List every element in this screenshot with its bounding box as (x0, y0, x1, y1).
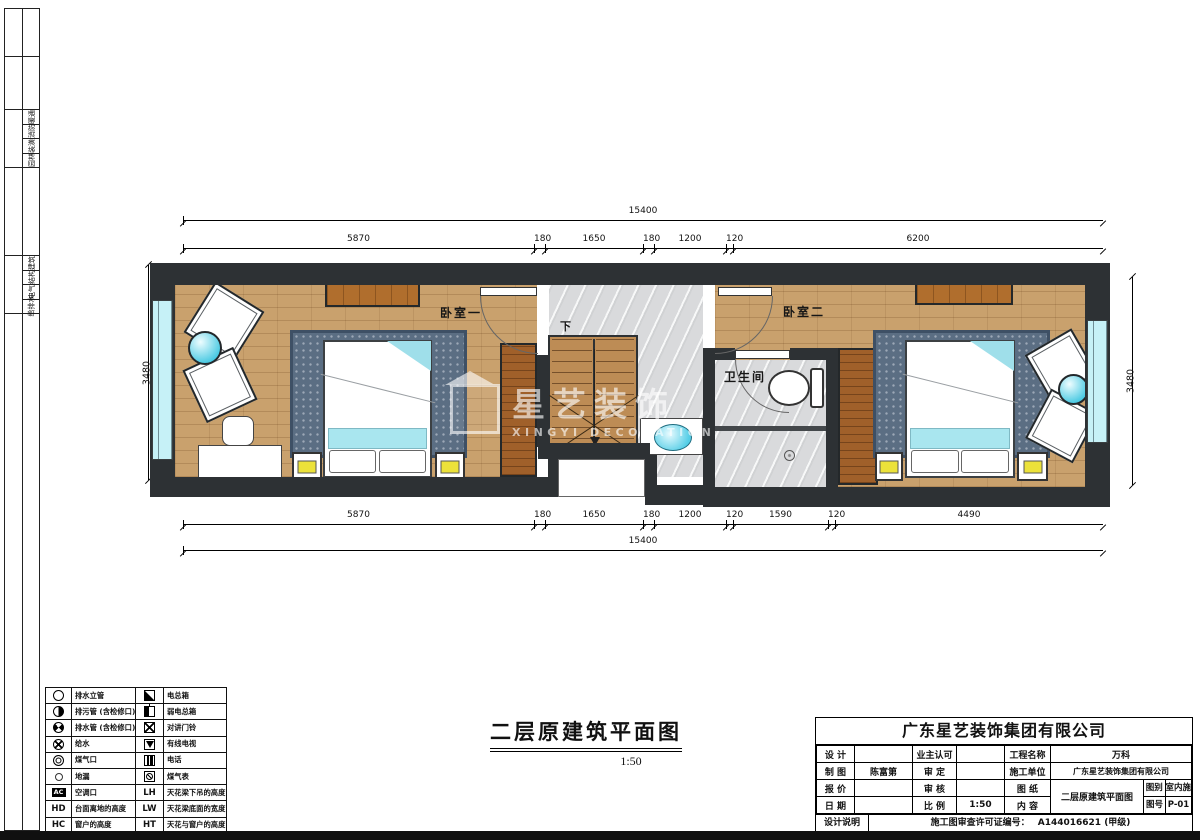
bedroom2-bed (905, 340, 1015, 478)
stairs-down-label: 下 (560, 318, 573, 334)
date-label: 日 期 (817, 797, 855, 814)
wall-corridor-bedroom2 (703, 350, 715, 487)
drain-riser-icon (53, 690, 64, 701)
pillow (379, 450, 426, 473)
discipline-plumbing: 给排水 (23, 299, 40, 313)
sheet-bottom-border (0, 831, 1200, 840)
stair-treads (596, 339, 634, 451)
number-cell: 图号 P-01 (1144, 797, 1192, 814)
hd-code: HD (51, 804, 65, 814)
gas-meter-icon (144, 771, 155, 782)
discipline-fire: 消防 (23, 124, 40, 138)
bedroom1-desk (198, 445, 282, 480)
legend-label: 给水 (72, 737, 136, 753)
company-name: 广东星艺装饰集团有限公司 (816, 718, 1192, 745)
permit-number: 施工图审查许可证编号： A144016621 (甲级) (869, 815, 1192, 832)
number-value: P-01 (1166, 797, 1191, 813)
cable-tv-icon (144, 739, 155, 750)
legend-label: 空调口 (72, 785, 136, 801)
content-label: 内 容 (1005, 797, 1051, 814)
wall-bedroom1-corridor (537, 355, 549, 447)
dim-right: 3480 (1124, 277, 1140, 485)
bedroom1-door-leaf (480, 287, 537, 296)
lamp (298, 460, 317, 473)
cad-sheet: 暖通 消防 装潢 园林 建筑 结构 电气 给排水 15400 5870 180 … (0, 0, 1200, 840)
strip-line (5, 167, 39, 168)
dim-top-overall: 15400 (183, 206, 1103, 221)
owner-value (957, 746, 1005, 763)
discipline-strip: 暖通 消防 装潢 园林 建筑 结构 电气 给排水 (4, 8, 40, 831)
category-cell: 图别 室内施 (1144, 780, 1192, 797)
stairwell-void (558, 459, 645, 497)
lamp (1023, 460, 1042, 473)
water-supply-icon (53, 739, 64, 750)
lamp (880, 460, 899, 473)
dim-top-segments: 5870 180 1650 180 1200 120 6200 (183, 234, 1103, 249)
pillow (329, 450, 376, 473)
owner-label: 业主认可 (913, 746, 957, 763)
dim-bottom-overall: 15400 (183, 536, 1103, 551)
approve-value (957, 763, 1005, 780)
bedroom2-label: 卧室二 (783, 303, 825, 320)
contractor-value: 广东星艺装饰集团有限公司 (1051, 763, 1192, 780)
weak-power-box-icon (144, 706, 155, 717)
floor-drain-icon (55, 773, 63, 781)
legend-label: 天花梁底面的宽度 (164, 801, 226, 817)
stair-treads (552, 339, 592, 451)
wall-stub (548, 459, 558, 497)
legend-label: 地漏 (72, 769, 136, 785)
number-label: 图号 (1144, 797, 1166, 813)
floor-plan: 卧室一 卧室二 卫生间 下 (150, 258, 1110, 510)
lamp (441, 460, 460, 473)
legend-label: 煤气口 (72, 753, 136, 769)
draft-label: 制 图 (817, 763, 855, 780)
draft-value: 陈富第 (855, 763, 913, 780)
bedroom1-label: 卧室一 (440, 304, 482, 321)
window-right (1087, 320, 1108, 443)
door-bell-icon (144, 722, 155, 733)
sheet-label: 图 纸 (1005, 780, 1051, 797)
bed-blanket (910, 428, 1010, 449)
bathroom-door-leaf (735, 350, 790, 359)
legend-label: 电总箱 (164, 688, 226, 704)
legend-label: 天花梁下吊的高度 (164, 785, 226, 801)
legend-label: 弱电总箱 (164, 704, 226, 720)
date-value (855, 797, 913, 814)
title-block-grid: 设 计 业主认可 工程名称 万科 制 图 陈富第 审 定 施工单位 广东星艺装饰… (816, 745, 1192, 814)
design-label: 设 计 (817, 746, 855, 763)
quote-label: 报 价 (817, 780, 855, 797)
contractor-label: 施工单位 (1005, 763, 1051, 780)
wall-under-stairs (538, 443, 650, 459)
check-value (957, 780, 1005, 797)
legend-label: 台面离地的高度 (72, 801, 136, 817)
shower-divider (715, 426, 826, 431)
telephone-icon (144, 755, 155, 766)
sewage-pipe-icon (53, 706, 64, 717)
discipline-hvac: 暖通 (23, 109, 40, 123)
note-label: 设计说明 (816, 815, 869, 832)
power-box-icon (144, 690, 155, 701)
ht-code: HT (143, 820, 156, 830)
legend-label: 对讲门铃 (164, 720, 226, 736)
window-left (152, 300, 173, 460)
discipline-arch: 建筑 (23, 255, 40, 269)
category-value: 室内施 (1166, 780, 1192, 796)
pillow (961, 450, 1009, 473)
wall-bottom-right (703, 487, 1110, 507)
bedroom2-wardrobe (838, 348, 878, 485)
bedroom1-bed (323, 340, 432, 478)
washbasin (654, 424, 692, 451)
legend-label: 排污管 (含检修口) (72, 704, 136, 720)
wall-top (150, 263, 1110, 285)
check-label: 审 核 (913, 780, 957, 797)
discipline-decor: 装潢 (23, 138, 40, 152)
bedroom2-nightstand-left (875, 452, 903, 481)
stairs (548, 335, 638, 455)
floor-drain (784, 450, 795, 461)
approve-label: 审 定 (913, 763, 957, 780)
hc-code: HC (52, 820, 65, 830)
lh-code: LH (143, 788, 156, 798)
gas-port-icon (53, 755, 64, 766)
discipline-structure: 结构 (23, 270, 40, 284)
lw-code: LW (142, 804, 156, 814)
project-label: 工程名称 (1005, 746, 1051, 763)
bathroom-label: 卫生间 (724, 368, 766, 385)
scale-label: 比 例 (913, 797, 957, 814)
ac-code: AC (52, 788, 66, 797)
stair-direction-arrow (594, 349, 595, 439)
pillow (911, 450, 959, 473)
legend-label: 电话 (164, 753, 226, 769)
legend-label: 煤气表 (164, 769, 226, 785)
bedroom1-desk-chair (222, 416, 254, 446)
legend-table: 排水立管 电总箱 排污管 (含检修口) 弱电总箱 排水管 (含检修口) 对讲门铃… (45, 687, 227, 835)
project-value: 万科 (1051, 746, 1192, 763)
quote-value (855, 780, 913, 797)
scale-value: 1:50 (957, 797, 1005, 814)
legend-label: 排水立管 (72, 688, 136, 704)
drawing-title-text: 二层原建筑平面图 (490, 716, 682, 752)
dim-bottom-segments: 5870 180 1650 180 1200 120 1590 120 4490 (183, 510, 1103, 525)
wall-bathroom-right (826, 348, 838, 487)
design-value (855, 746, 913, 763)
bedroom2-door-leaf (718, 287, 772, 296)
toilet-tank (810, 368, 824, 408)
title-block: 广东星艺装饰集团有限公司 设 计 业主认可 工程名称 万科 制 图 陈富第 审 … (815, 717, 1193, 833)
discipline-landscape: 园林 (23, 153, 40, 167)
wall-bottom-left (150, 477, 550, 497)
legend-label: 有线电视 (164, 737, 226, 753)
content-value: 二层原建筑平面图 (1051, 780, 1144, 814)
category-label: 图别 (1144, 780, 1166, 796)
bedroom2-nightstand-right (1017, 452, 1048, 481)
bedroom1-side-table (188, 331, 222, 365)
legend-label: 排水管 (含检修口) (72, 720, 136, 736)
bed-blanket (328, 428, 427, 449)
strip-line (5, 56, 39, 57)
drawing-scale: 1:50 (478, 754, 694, 769)
bedroom1-wardrobe (500, 343, 537, 477)
title-block-footer: 设计说明 施工图审查许可证编号： A144016621 (甲级) (816, 814, 1192, 832)
drain-pipe-icon (53, 722, 64, 733)
drawing-title: 二层原建筑平面图 1:50 (478, 716, 694, 769)
